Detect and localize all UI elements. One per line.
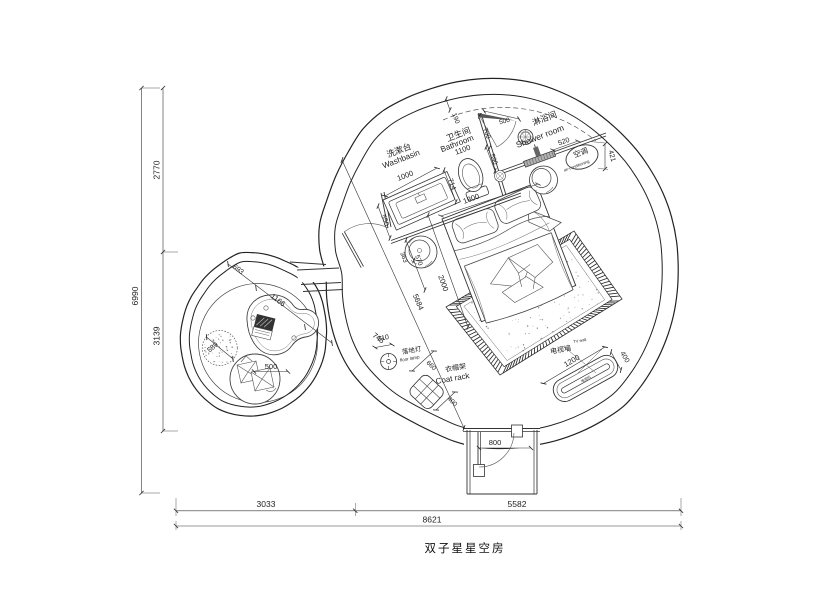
svg-text:双子星星空房: 双子星星空房 [425, 541, 506, 555]
svg-text:5582: 5582 [508, 499, 527, 509]
svg-text:2770: 2770 [152, 160, 162, 179]
svg-text:3033: 3033 [257, 499, 276, 509]
svg-text:500: 500 [265, 362, 278, 371]
svg-text:8621: 8621 [423, 515, 442, 525]
svg-text:6990: 6990 [130, 286, 140, 305]
svg-text:800: 800 [489, 438, 502, 447]
svg-text:3139: 3139 [152, 326, 162, 345]
